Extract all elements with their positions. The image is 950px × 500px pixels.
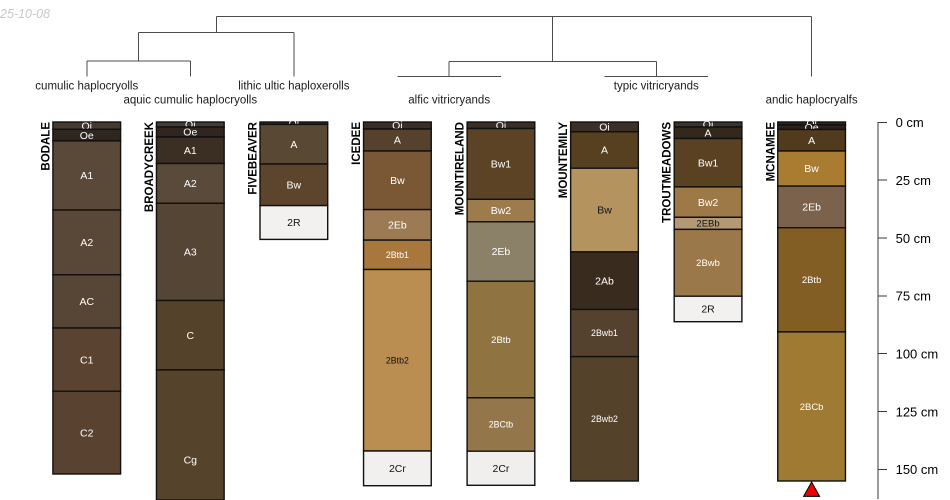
svg-text:MOUNTIRELAND: MOUNTIRELAND	[455, 122, 467, 215]
svg-text:Bw: Bw	[597, 205, 612, 217]
svg-text:lithic ultic haploxerolls: lithic ultic haploxerolls	[238, 81, 349, 93]
svg-text:aquic cumulic haplocryolls: aquic cumulic haplocryolls	[124, 94, 258, 106]
svg-text:2BCb: 2BCb	[800, 402, 824, 413]
svg-text:Cg: Cg	[184, 455, 198, 467]
svg-text:2BCtb: 2BCtb	[489, 420, 514, 430]
svg-text:2Btb: 2Btb	[491, 335, 511, 346]
svg-text:BODALE: BODALE	[40, 122, 52, 171]
svg-text:AC: AC	[79, 296, 94, 308]
svg-text:2Bwb: 2Bwb	[696, 258, 720, 269]
svg-text:25-10-08: 25-10-08	[0, 7, 50, 21]
svg-text:0 cm: 0 cm	[896, 115, 924, 130]
svg-text:25 cm: 25 cm	[896, 173, 931, 188]
svg-text:2Cr: 2Cr	[389, 463, 406, 475]
svg-text:2Cr: 2Cr	[492, 463, 509, 475]
svg-text:BROADYCREEK: BROADYCREEK	[144, 121, 156, 212]
svg-text:FIVEBEAVER: FIVEBEAVER	[248, 121, 260, 194]
svg-text:75 cm: 75 cm	[896, 289, 931, 304]
svg-text:typic vitricryands: typic vitricryands	[614, 81, 699, 93]
svg-text:andic haplocryalfs: andic haplocryalfs	[766, 94, 858, 106]
svg-text:150 cm: 150 cm	[896, 462, 939, 477]
svg-text:C: C	[187, 330, 195, 342]
svg-text:50 cm: 50 cm	[896, 231, 931, 246]
svg-text:2Bwb2: 2Bwb2	[591, 414, 618, 424]
svg-text:Bw2: Bw2	[698, 197, 719, 209]
svg-text:2EBb: 2EBb	[696, 219, 719, 230]
svg-text:A: A	[705, 127, 712, 139]
svg-text:Bw: Bw	[390, 175, 405, 187]
svg-text:Bw1: Bw1	[698, 157, 719, 169]
svg-text:2R: 2R	[287, 217, 301, 229]
svg-text:Oe: Oe	[80, 130, 94, 142]
svg-text:2Btb2: 2Btb2	[386, 355, 409, 365]
svg-text:A: A	[601, 145, 608, 157]
svg-text:100 cm: 100 cm	[896, 346, 939, 361]
svg-text:2Eb: 2Eb	[388, 220, 407, 232]
svg-text:2Ab: 2Ab	[595, 275, 614, 287]
svg-text:C2: C2	[80, 427, 94, 439]
svg-text:ICEDEE: ICEDEE	[351, 122, 363, 165]
svg-text:alfic vitricryands: alfic vitricryands	[408, 94, 490, 106]
svg-text:TROUTMEADOWS: TROUTMEADOWS	[662, 122, 674, 223]
svg-text:A: A	[394, 135, 401, 147]
svg-text:MCNAMEE: MCNAMEE	[765, 122, 777, 182]
svg-text:2Eb: 2Eb	[802, 202, 821, 214]
svg-text:MOUNTEMILY: MOUNTEMILY	[558, 122, 570, 199]
svg-text:cumulic haplocryolls: cumulic haplocryolls	[35, 81, 138, 93]
svg-text:A1: A1	[184, 145, 197, 157]
svg-text:A3: A3	[184, 247, 197, 259]
svg-text:A: A	[808, 135, 815, 147]
svg-text:A2: A2	[184, 178, 197, 190]
svg-text:C1: C1	[80, 354, 94, 366]
svg-text:Bw2: Bw2	[491, 205, 512, 217]
svg-text:A2: A2	[80, 237, 93, 249]
svg-text:2Btb: 2Btb	[802, 275, 822, 286]
svg-text:Bw: Bw	[804, 163, 819, 175]
svg-text:A: A	[290, 139, 297, 151]
svg-text:2R: 2R	[701, 304, 715, 316]
svg-text:125 cm: 125 cm	[896, 404, 939, 419]
svg-text:Bw: Bw	[287, 179, 302, 191]
svg-text:2Bwb1: 2Bwb1	[591, 328, 618, 338]
svg-text:Bw1: Bw1	[491, 159, 512, 171]
svg-text:2Btb1: 2Btb1	[386, 250, 409, 260]
svg-text:2Eb: 2Eb	[492, 246, 511, 258]
svg-text:A1: A1	[80, 170, 93, 182]
